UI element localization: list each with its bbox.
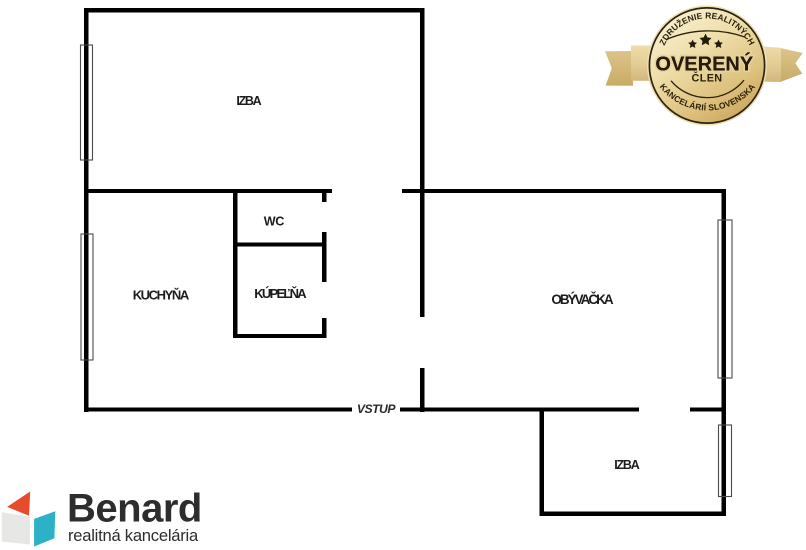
svg-text:ČLEN: ČLEN (692, 72, 723, 85)
svg-text:Benard: Benard (67, 486, 202, 530)
svg-text:IZBA: IZBA (236, 94, 261, 108)
svg-text:WC: WC (264, 215, 284, 229)
svg-text:OBÝVAČKA: OBÝVAČKA (551, 292, 614, 307)
svg-text:KÚPEĽŇA: KÚPEĽŇA (254, 286, 307, 301)
svg-text:KUCHYŇA: KUCHYŇA (133, 288, 190, 303)
svg-text:VSTUP: VSTUP (357, 402, 397, 416)
svg-text:realitná kancelária: realitná kancelária (68, 526, 199, 545)
svg-text:IZBA: IZBA (614, 458, 640, 472)
